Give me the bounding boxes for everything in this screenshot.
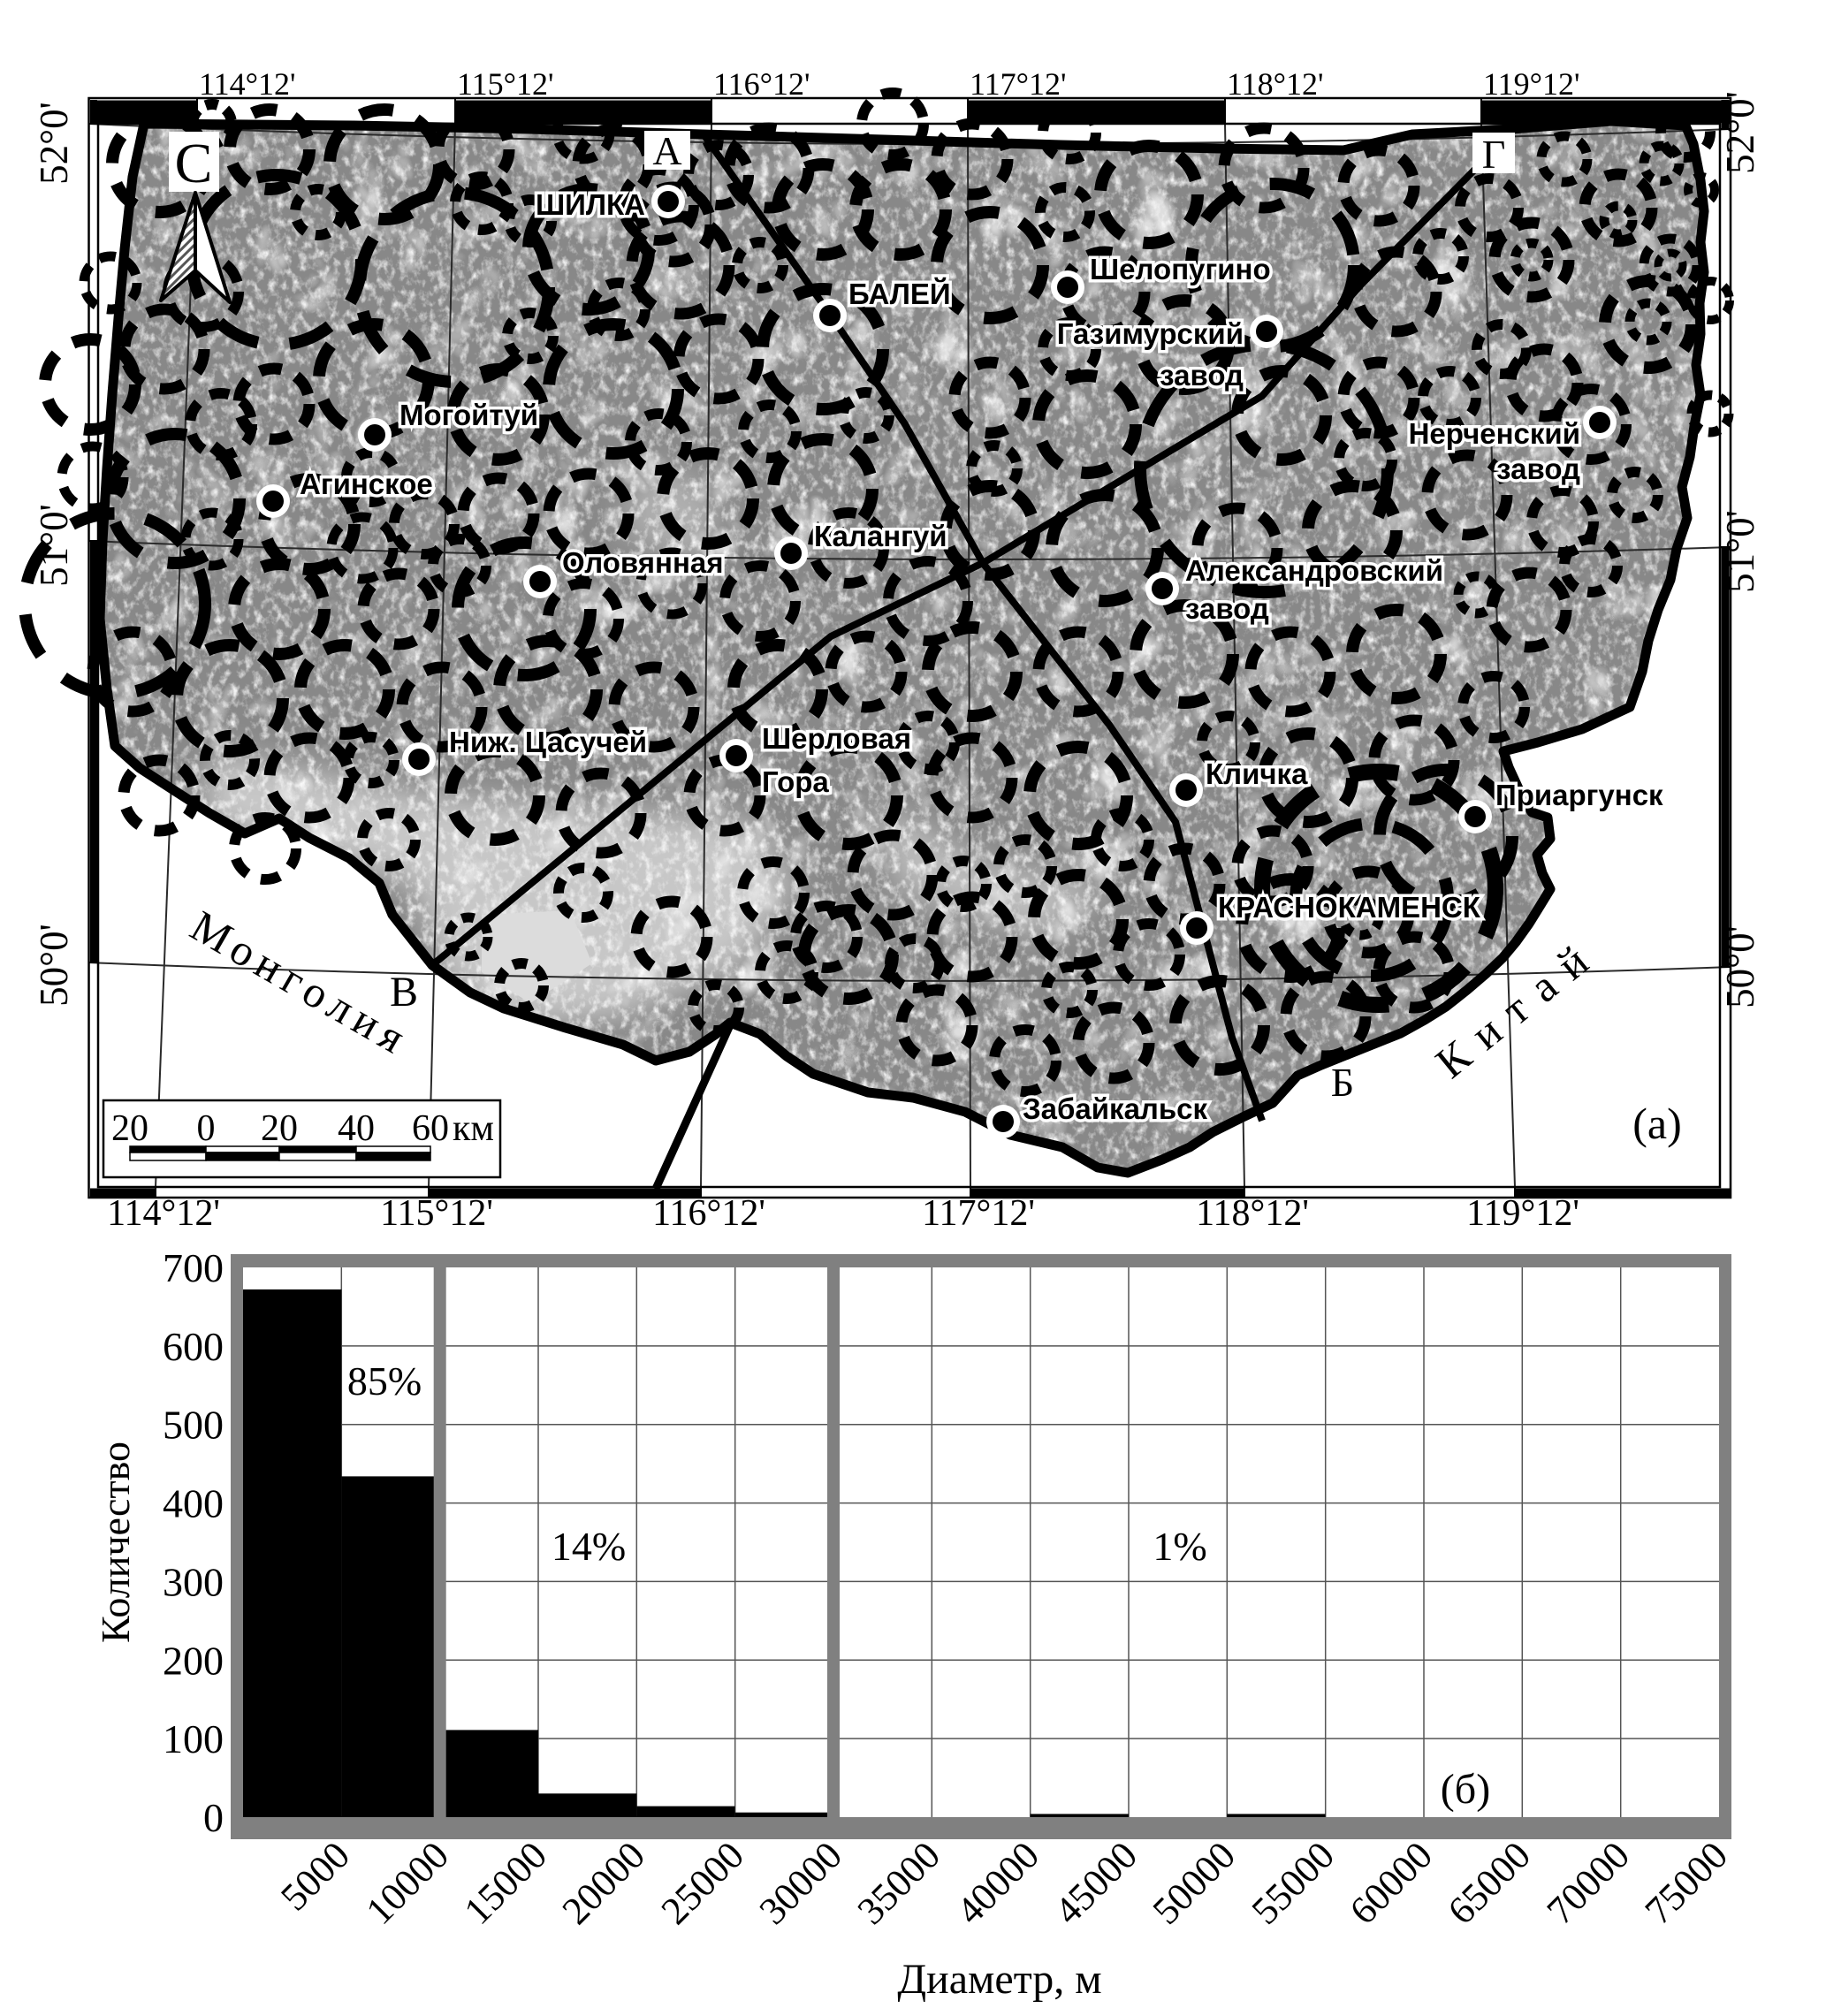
- svg-text:завод: завод: [1496, 453, 1580, 485]
- svg-text:Оловянная: Оловянная: [562, 546, 724, 579]
- svg-text:50°0': 50°0': [1718, 925, 1762, 1008]
- svg-text:20: 20: [111, 1108, 148, 1149]
- svg-text:(а): (а): [1632, 1099, 1682, 1148]
- svg-text:300: 300: [163, 1559, 224, 1604]
- svg-text:Ниж. Цасучей: Ниж. Цасучей: [449, 726, 647, 758]
- svg-text:Агинское: Агинское: [300, 468, 433, 500]
- svg-text:Диаметр, м: Диаметр, м: [897, 1956, 1101, 2003]
- svg-text:завод: завод: [1185, 592, 1269, 625]
- svg-text:Б: Б: [1331, 1060, 1354, 1105]
- svg-text:117°12': 117°12': [970, 66, 1067, 102]
- svg-text:Шерловая: Шерловая: [762, 722, 911, 755]
- svg-text:117°12': 117°12': [922, 1193, 1035, 1234]
- svg-text:Александровский: Александровский: [1185, 554, 1443, 587]
- svg-text:Газимурский: Газимурский: [1057, 317, 1244, 350]
- svg-text:0: 0: [197, 1108, 216, 1149]
- svg-text:Нерченский: Нерченский: [1409, 417, 1580, 450]
- svg-text:14%: 14%: [552, 1524, 626, 1569]
- svg-text:Гора: Гора: [762, 765, 829, 798]
- svg-text:БАЛЕЙ: БАЛЕЙ: [848, 277, 951, 310]
- svg-text:Количество: Количество: [93, 1442, 138, 1643]
- svg-text:Шелопугино: Шелопугино: [1090, 253, 1271, 285]
- svg-text:(б): (б): [1441, 1766, 1490, 1813]
- svg-text:118°12': 118°12': [1196, 1193, 1309, 1234]
- svg-text:40: 40: [338, 1108, 375, 1149]
- svg-text:0: 0: [203, 1795, 224, 1840]
- svg-text:1%: 1%: [1153, 1524, 1206, 1569]
- svg-text:116°12': 116°12': [652, 1193, 765, 1234]
- svg-text:52°0': 52°0': [32, 102, 76, 185]
- svg-text:С: С: [175, 132, 213, 194]
- svg-text:114°12': 114°12': [107, 1193, 220, 1234]
- svg-text:Г: Г: [1482, 132, 1506, 177]
- svg-text:51°0': 51°0': [32, 504, 76, 587]
- svg-text:85%: 85%: [347, 1358, 422, 1404]
- svg-text:60: 60: [412, 1108, 449, 1149]
- svg-text:500: 500: [163, 1403, 224, 1448]
- svg-text:200: 200: [163, 1638, 224, 1683]
- svg-text:51°0': 51°0': [1718, 510, 1762, 593]
- svg-text:700: 700: [163, 1245, 224, 1290]
- svg-text:Приаргунск: Приаргунск: [1495, 779, 1663, 811]
- svg-text:115°12': 115°12': [457, 66, 554, 102]
- svg-text:119°12': 119°12': [1483, 66, 1580, 102]
- svg-text:116°12': 116°12': [713, 66, 810, 102]
- svg-text:Калангуй: Калангуй: [814, 520, 947, 552]
- svg-text:Кличка: Кличка: [1206, 757, 1308, 790]
- svg-text:Могойтуй: Могойтуй: [399, 399, 538, 431]
- svg-text:100: 100: [163, 1716, 224, 1761]
- svg-text:КРАСНОКАМЕНСК: КРАСНОКАМЕНСК: [1218, 891, 1481, 924]
- svg-text:А: А: [652, 128, 681, 173]
- svg-text:114°12': 114°12': [199, 66, 296, 102]
- svg-text:600: 600: [163, 1324, 224, 1369]
- svg-text:ШИЛКА: ШИЛКА: [536, 188, 645, 221]
- svg-text:119°12': 119°12': [1466, 1193, 1579, 1234]
- svg-text:50°0': 50°0': [32, 924, 76, 1007]
- svg-text:115°12': 115°12': [380, 1193, 493, 1234]
- svg-text:20: 20: [261, 1108, 298, 1149]
- svg-text:Забайкальск: Забайкальск: [1023, 1092, 1208, 1125]
- svg-text:400: 400: [163, 1481, 224, 1526]
- svg-text:км: км: [453, 1108, 494, 1149]
- svg-text:118°12': 118°12': [1227, 66, 1324, 102]
- svg-text:52°0': 52°0': [1718, 91, 1762, 174]
- svg-text:завод: завод: [1160, 359, 1244, 392]
